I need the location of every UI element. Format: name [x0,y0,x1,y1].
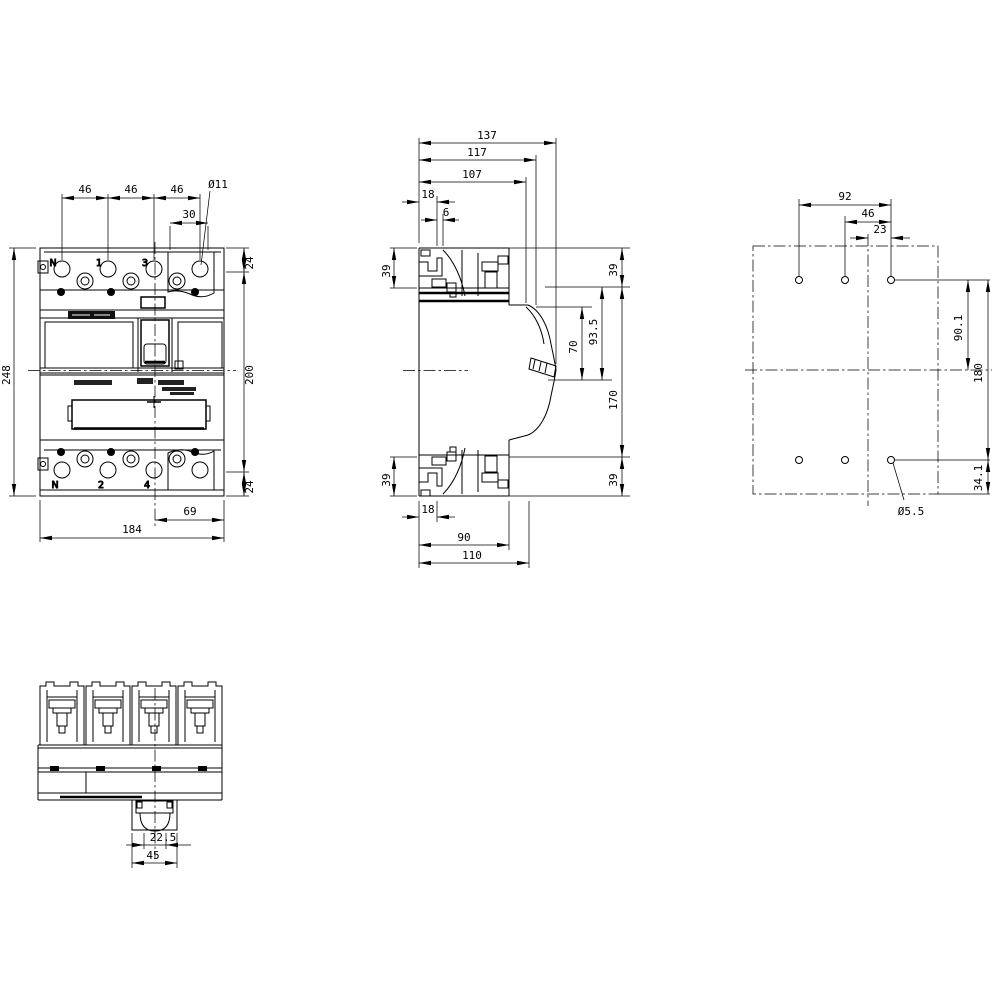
dim-top-rear-step: 6 [443,206,450,219]
terminal-label-n-top: N [49,258,56,269]
drilling-plan [745,234,992,506]
dim-row-spacing: 180 [972,363,985,383]
dim-height-top: 24 [243,256,256,270]
dim-span-inner: 46 [861,207,874,220]
dim-depth-overall: 137 [477,129,497,142]
dim-handle-window: 70 [567,340,580,353]
bottom-view-handle [132,800,177,831]
terminal-label-n-bottom: N [51,480,58,491]
dimension-drawing-canvas: N 1 3 [0,0,1000,1000]
dim-rear-bottom-39: 39 [380,473,393,486]
drilling-plan-dimensions [799,199,990,500]
dim-front-top-39: 39 [607,263,620,276]
dim-height-mid: 200 [243,365,256,385]
terminal-label-3: 3 [142,258,148,269]
side-bottom-left-terminal [419,447,465,496]
dim-handle-travel: 93.5 [587,319,600,346]
dim-hole-edge-offset: 69 [183,505,196,518]
escutcheon-inner-curve [526,307,544,344]
test-window [141,297,165,308]
mounting-hole-top [192,261,208,277]
dim-height-bottom: 24 [243,480,256,494]
side-top-right-detail [462,250,508,296]
dim-base-depth: 110 [462,549,482,562]
dim-handle-width: 22.5 [150,831,177,844]
front-bottom-terminals [54,451,185,478]
dim-rear-top-39: 39 [380,264,393,277]
dim-height-overall: 248 [0,365,13,385]
terminal-label-2: 2 [98,480,104,491]
side-bottom-right-detail [462,450,508,494]
front-middle-section [45,318,222,372]
dim-width-overall: 184 [122,523,142,536]
dim-pole-pitch-2: 46 [124,183,137,196]
terminal-label-4: 4 [144,480,150,491]
dim-hole-offset: 30 [182,208,195,221]
dim-row-to-edge: 34.1 [972,465,985,492]
mounting-hole-bottom [192,462,208,478]
dim-top-rear-offset: 18 [421,188,434,201]
dim-front-bottom-39: 39 [607,473,620,486]
dim-mounting-depth: 90 [457,531,470,544]
rating-text-illegible [74,378,196,395]
dim-row-to-center: 90.1 [952,315,965,342]
dim-pole-pitch-3: 46 [170,183,183,196]
dim-pole-pitch-1: 46 [78,183,91,196]
dim-hole-diameter: Ø11 [208,178,228,191]
side-view [403,248,556,496]
dim-span-center: 23 [873,223,886,236]
dim-handle-base-width: 45 [146,849,159,862]
dim-depth-escutcheon: 107 [462,168,482,181]
rating-plate [68,396,210,429]
dim-body-height: 170 [607,390,620,410]
terminal-label-1: 1 [96,258,102,269]
dim-drill-hole-diameter: Ø5.5 [898,505,925,518]
dim-span-outer: 92 [838,190,851,203]
toggle-handle-side [529,358,556,377]
side-top-left-terminal [419,250,465,297]
front-top-terminals [54,261,185,289]
handle-escutcheon [509,305,556,440]
technical-drawing-page: N 1 3 [0,0,1000,1000]
bottom-view [38,682,222,858]
dim-bottom-rear-offset: 18 [421,503,434,516]
dim-depth-handle: 117 [467,146,487,159]
front-view: N 1 3 [28,242,236,526]
